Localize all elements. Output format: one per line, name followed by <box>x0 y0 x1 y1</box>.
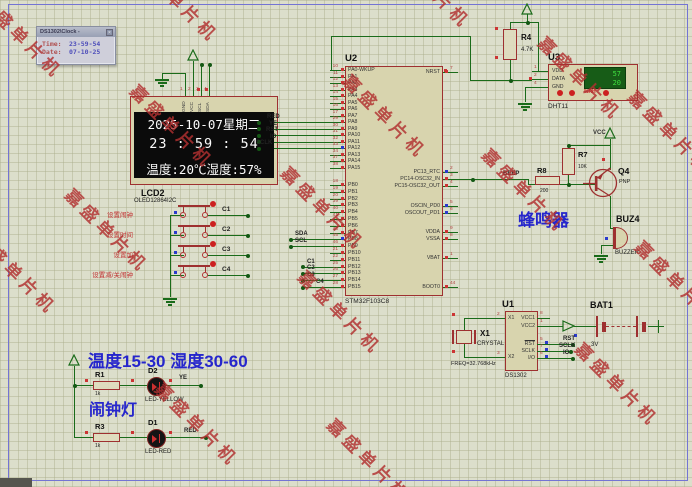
probe-marker <box>495 27 498 30</box>
ground-icon <box>160 85 164 87</box>
pin-marker <box>341 224 344 227</box>
mcu-pin-name: PC13_RTC <box>360 169 440 175</box>
junction-dot <box>208 63 212 67</box>
lcd-pin-name: VCC <box>190 102 195 112</box>
mcu-pin-number: 41 <box>322 213 338 218</box>
component-plate <box>474 330 476 344</box>
mcu-pin-name: PA11 <box>348 139 360 145</box>
pin-marker <box>341 75 344 78</box>
wire <box>470 80 532 81</box>
humidity-value: 57 <box>613 70 621 78</box>
vcc-label: VCC <box>593 130 606 136</box>
wire <box>302 287 330 288</box>
net-label-c2: C2 <box>222 226 230 233</box>
mcu-pin-name: PA4 <box>348 93 357 99</box>
ground-icon <box>523 109 527 111</box>
mcu-pin-name: PB1 <box>348 189 358 195</box>
mcu-pin-number: 10 <box>322 64 338 69</box>
pin-marker <box>341 120 344 123</box>
wire <box>170 215 171 297</box>
mcu-pin-name: PB5 <box>348 216 358 222</box>
mcu-pin-name: PA9 <box>348 126 357 132</box>
junction-dot <box>257 127 261 131</box>
pin-marker <box>341 258 344 261</box>
junction-dot <box>571 357 575 361</box>
mcu-pin-name: PB6 <box>348 223 358 229</box>
key-function-label: 设置减/关闹钟 <box>60 269 133 279</box>
pin-marker <box>445 211 448 214</box>
rtc-pin-name: VCC1 <box>505 315 535 321</box>
rtc-pin-number: 2 <box>497 312 500 317</box>
button-terminal <box>202 232 208 238</box>
net-label-io: IO <box>270 134 276 140</box>
ground-icon <box>594 255 608 257</box>
resistor-r7[interactable] <box>562 148 575 175</box>
crystal-ref: X1 <box>480 329 490 338</box>
dht-pin-number: 2 <box>534 73 537 78</box>
d1-ref: D1 <box>148 418 158 427</box>
dht-part: DHT11 <box>548 103 568 110</box>
r3-ref: R3 <box>95 422 105 431</box>
rtc-pin-name: RST <box>505 341 535 347</box>
mcu-pin-number: 26 <box>322 267 338 272</box>
r8-value: 200 <box>540 188 548 194</box>
mcu-pin-name: PA5 <box>348 100 357 106</box>
wire <box>331 36 470 37</box>
net-label-io-rtc: IO <box>563 350 569 356</box>
wire <box>464 318 505 319</box>
mcu-pin-number: 15 <box>322 97 338 102</box>
pin-marker <box>341 114 344 117</box>
date-value: 07-10-25 <box>69 48 100 56</box>
crystal-x1[interactable] <box>456 330 472 344</box>
lcd-ref: LCD2 <box>141 188 165 198</box>
wire <box>532 71 548 72</box>
wire <box>568 145 610 146</box>
net-label-sda: SDA <box>295 231 308 237</box>
pin-marker <box>445 237 448 240</box>
pin-marker <box>341 285 344 288</box>
mcu-pin-number: 45 <box>322 233 338 238</box>
pin-marker <box>445 285 448 288</box>
wire <box>537 326 550 327</box>
lcd-part: OLED12864I2C <box>134 198 176 204</box>
rtc-ref: U1 <box>502 299 514 310</box>
led-yellow-d2[interactable] <box>147 377 166 396</box>
mcu-pin-name: PA14 <box>348 158 360 164</box>
mcu-pin-name: PC15-OSC32_OUT <box>360 183 440 189</box>
junction-dot <box>526 21 530 25</box>
lcd-screen: 2025-10-07星期二 23 : 59 : 54 温度:20℃湿度:57% <box>134 112 274 178</box>
lcd-line-date: 2025-10-07星期二 <box>134 114 274 133</box>
net-label-sclk-rtc: SCLK <box>559 343 575 349</box>
junction-dot <box>257 121 261 125</box>
probe-marker <box>169 431 172 434</box>
junction-dot <box>246 254 250 258</box>
junction-dot <box>567 183 571 187</box>
button-actuator <box>210 221 216 227</box>
temperature-value: 20 <box>613 79 621 87</box>
ground-icon <box>168 304 172 306</box>
wire <box>550 358 572 359</box>
r4-value: 4.7K <box>521 47 533 53</box>
ground-icon <box>518 103 532 105</box>
wire <box>537 318 550 319</box>
rtc-pin-name: VCC2 <box>505 323 535 329</box>
wire <box>120 385 147 386</box>
button-terminal <box>180 232 186 238</box>
junction-dot <box>301 272 305 276</box>
probe-marker <box>605 237 608 240</box>
r1-value: 1k <box>95 391 100 397</box>
wire <box>510 60 511 80</box>
battery-ref: BAT1 <box>590 300 613 310</box>
probe-marker <box>545 348 548 351</box>
resistor-r8[interactable] <box>535 176 560 185</box>
mcu-pin-name: PA8 <box>348 119 357 125</box>
mcu-pin-number: 39 <box>322 199 338 204</box>
wire <box>470 36 471 80</box>
button-actuator <box>210 201 216 207</box>
mcu-pin-number: 11 <box>322 71 338 76</box>
probe-marker <box>545 355 548 358</box>
pin-marker <box>341 231 344 234</box>
resistor-r4[interactable] <box>503 29 517 60</box>
mcu-ref: U2 <box>345 53 357 64</box>
wire <box>538 22 539 72</box>
mcu-pin-number: 29 <box>322 116 338 121</box>
pin-marker <box>341 159 344 162</box>
mcu-pin-name: PB0 <box>348 182 358 188</box>
button-terminal <box>180 252 186 258</box>
wire <box>464 357 505 358</box>
pin-marker <box>341 265 344 268</box>
r3-value: 1k <box>95 443 100 449</box>
pin-marker <box>341 251 344 254</box>
d2-part: LED-YELLOW <box>145 397 184 403</box>
mcu-pin-name: BOOT0 <box>360 284 440 290</box>
junction-dot <box>200 63 204 67</box>
button-terminal <box>180 272 186 278</box>
button-terminal <box>202 252 208 258</box>
mcu-pin-number: 20 <box>322 193 338 198</box>
vcc-arrow-icon <box>68 354 80 366</box>
component-plate <box>596 316 598 337</box>
pin-marker <box>341 140 344 143</box>
probe-marker <box>495 56 498 59</box>
wire <box>537 351 550 352</box>
mcu-pin-number: 31 <box>322 129 338 134</box>
range-caption: 温度15-30 湿度30-60 <box>88 347 248 372</box>
wire <box>193 61 194 96</box>
pin-marker <box>341 197 344 200</box>
resistor-r3[interactable] <box>93 433 120 442</box>
battery-voltage: 3V <box>591 342 598 348</box>
pin-marker <box>341 210 344 213</box>
mcu-pin-name: PA3 <box>348 87 357 93</box>
junction-dot <box>301 286 305 290</box>
pin-marker <box>445 177 448 180</box>
time-label: Time: <box>42 40 62 48</box>
mcu-pin-number: 30 <box>322 123 338 128</box>
r4-ref: R4 <box>521 33 531 42</box>
mcu-pin-number: 28 <box>322 281 338 286</box>
net-label-rst: RST <box>266 127 278 133</box>
crystal-part: CRYSTAL <box>477 341 504 347</box>
mcu-pin-name: PA1 <box>348 74 357 80</box>
mcu-pin-number: 17 <box>322 110 338 115</box>
mcu-pin-number: 6 <box>450 207 453 212</box>
mcu-pin-number: 14 <box>322 90 338 95</box>
mcu-pin-number: 43 <box>322 227 338 232</box>
junction-dot <box>246 234 250 238</box>
wire <box>525 87 526 102</box>
rtc-pin-name: I/O <box>505 355 535 361</box>
mcu-pin-name: PA2 <box>348 80 357 86</box>
key-function-label: 设置加 <box>60 249 133 259</box>
wire <box>574 326 596 327</box>
probe-marker <box>169 379 172 382</box>
net-label-rst-rtc: RST <box>563 336 575 342</box>
pin-marker <box>341 81 344 84</box>
ground-icon <box>597 258 606 260</box>
mcu-pin-name: PA10 <box>348 132 360 138</box>
rtc-pin-number: 5 <box>540 337 543 342</box>
mcu-pin-name: PA6 <box>348 106 357 112</box>
rtc-pin-number: 1 <box>540 319 543 324</box>
component-plate <box>642 322 646 332</box>
dht-led-icon <box>603 90 609 96</box>
lcd-line-temp-humi: 温度:20℃湿度:57% <box>134 159 274 178</box>
junction-dot <box>204 436 208 440</box>
net-label-ye: YE <box>269 121 277 127</box>
clock-popup-window[interactable]: DS1302\Clock - × Time: 23-59-54 Date: 07… <box>36 26 116 65</box>
pin-marker <box>341 278 344 281</box>
pin-marker <box>174 231 177 234</box>
ground-icon <box>599 261 603 263</box>
wire <box>601 245 602 254</box>
mcu-pin-name: PB14 <box>348 277 361 283</box>
mcu-pin-number: 33 <box>322 142 338 147</box>
mcu-pin-name: PA13 <box>348 152 360 158</box>
r7-value: 10K <box>578 164 587 170</box>
junction-dot <box>289 238 293 242</box>
button-actuator <box>210 241 216 247</box>
wire <box>525 87 533 88</box>
probe-marker <box>85 379 88 382</box>
pin-marker <box>341 101 344 104</box>
pin-marker <box>341 94 344 97</box>
wire <box>648 326 658 327</box>
mcu-pin-number: 40 <box>322 206 338 211</box>
junction-dot <box>257 147 261 151</box>
rtc-pin-number: 6 <box>540 351 543 356</box>
pin-marker <box>341 244 344 247</box>
resistor-r1[interactable] <box>93 381 120 390</box>
wire <box>532 79 548 80</box>
q4-ref: Q4 <box>618 166 629 176</box>
mcu-pin-name: PB10 <box>348 250 361 256</box>
dht-pin-name: GND <box>552 84 564 90</box>
junction-dot <box>509 79 513 83</box>
ground-icon <box>155 79 169 81</box>
r1-ref: R1 <box>95 370 105 379</box>
junction-dot <box>567 144 571 148</box>
window-corner <box>0 478 32 487</box>
mcu-pin-name: PB11 <box>348 257 360 263</box>
pin-marker <box>174 251 177 254</box>
dht-pin-name: VDD <box>552 68 563 74</box>
mcu-pin-number: 46 <box>322 240 338 245</box>
component-plate <box>636 316 638 337</box>
junction-dot <box>301 279 305 283</box>
mcu-pin-name: NRST <box>360 69 440 75</box>
mcu-pin-name: PA15 <box>348 165 360 171</box>
mcu-pin-name: VDDA <box>360 229 440 235</box>
lcd-pin-name: GND <box>182 101 187 112</box>
lcd-pin-number: 2 <box>188 87 191 92</box>
mcu-pin-number: 42 <box>322 220 338 225</box>
dht-pin-number: 1 <box>534 65 537 70</box>
pin-marker <box>341 133 344 136</box>
date-label: Date: <box>42 48 62 56</box>
pin-marker <box>174 211 177 214</box>
battery-bat1[interactable] <box>606 326 636 327</box>
mcu-pin-name: OSCOUT_PD1 <box>360 210 440 216</box>
mcu-pin-number: 18 <box>322 179 338 184</box>
probe-marker <box>529 77 532 80</box>
mcu-pin-number: 12 <box>322 77 338 82</box>
dht-led-icon <box>557 90 563 96</box>
close-icon[interactable]: × <box>106 29 113 36</box>
wire <box>74 437 93 438</box>
pin-marker <box>174 271 177 274</box>
wire <box>120 437 147 438</box>
dht-pin-number: 4 <box>534 81 537 86</box>
crystal-freq: FREQ=32.768kHz <box>451 361 496 367</box>
mcu-pin-number: 2 <box>450 166 453 171</box>
net-label-ye: YE <box>179 375 187 381</box>
schematic-canvas: DS1302\Clock - × Time: 23-59-54 Date: 07… <box>0 0 692 487</box>
net-label-c1: C1 <box>222 206 230 213</box>
net-label-c1-mcu: C1 <box>307 259 315 265</box>
dht-rh-label: %RH <box>584 89 596 95</box>
mcu-pin-name: OSCIN_PD0 <box>360 203 440 209</box>
q4-type: PNP <box>619 179 630 185</box>
wire <box>532 87 548 88</box>
buz-ref: BUZ4 <box>616 214 640 224</box>
button-terminal <box>202 212 208 218</box>
mcu-pin-number: 5 <box>450 200 453 205</box>
r7-ref: R7 <box>578 150 588 159</box>
mcu-pin-name: PB12 <box>348 264 361 270</box>
vcc-arrow-icon <box>521 3 533 15</box>
wire <box>201 64 202 96</box>
junction-dot <box>257 134 261 138</box>
dht-pin-name: DATA <box>552 76 565 82</box>
mcu-pin-name: PB9 <box>348 243 358 249</box>
mcu-pin-number: 27 <box>322 274 338 279</box>
probe-marker <box>452 350 455 353</box>
mcu-pin-name: PB7 <box>348 230 358 236</box>
button-actuator <box>210 261 216 267</box>
power-terminal-icon <box>562 320 575 332</box>
wire <box>165 385 200 386</box>
probe-marker <box>131 379 134 382</box>
mcu-pin-number: 3 <box>450 173 453 178</box>
led-red-d1[interactable] <box>147 429 166 448</box>
probe-marker <box>131 431 134 434</box>
net-label-scl: SCL <box>295 238 307 244</box>
alarm-lamp-caption: 闹钟灯 <box>89 396 137 420</box>
mcu-pin-number: 21 <box>322 247 338 252</box>
mcu-pin-number: 7 <box>450 66 453 71</box>
d2-ref: D2 <box>148 366 158 375</box>
r8-ref: R8 <box>537 166 547 175</box>
pin-marker <box>445 256 448 259</box>
lcd-line-time: 23 : 59 : 54 <box>134 136 274 152</box>
pin-marker <box>445 170 448 173</box>
pin-marker <box>341 217 344 220</box>
dht-display: 57 20 <box>584 67 626 89</box>
mcu-pin-number: 8 <box>450 233 453 238</box>
probe-marker <box>452 313 455 316</box>
junction-dot <box>246 274 250 278</box>
pin-marker <box>341 190 344 193</box>
mcu-pin-name: PA12 <box>348 145 360 151</box>
lcd-pin-name: SDA <box>206 102 211 112</box>
junction-dot <box>246 214 250 218</box>
net-label-c3: C3 <box>222 246 230 253</box>
mcu-pin-name: PB8 <box>348 236 358 242</box>
mcu-pin-number: 4 <box>450 180 453 185</box>
pin-marker <box>341 153 344 156</box>
pin-marker <box>341 127 344 130</box>
pin-marker <box>341 203 344 206</box>
ground-icon <box>158 82 167 84</box>
mcu-pin-name: PC14-OSC32_IN <box>360 176 440 182</box>
lcd-pin-number: 4 <box>204 87 207 92</box>
mcu-pin-name: PB2 <box>348 196 358 202</box>
rtc-pin-number: 8 <box>540 311 543 316</box>
buz-part: BUZZER <box>615 250 639 256</box>
mcu-pin-number: 9 <box>450 226 453 231</box>
rtc-part: DS1302 <box>505 373 527 379</box>
dht-led-icon <box>569 90 575 96</box>
wire <box>162 73 186 74</box>
junction-dot <box>471 178 475 182</box>
probe-marker <box>602 158 605 161</box>
time-value: 23-59-54 <box>69 40 100 48</box>
wire <box>165 437 205 438</box>
key-function-label: 设置闹钟 <box>60 209 133 219</box>
junction-dot <box>289 245 293 249</box>
wire <box>464 344 465 358</box>
mcu-pin-number: 38 <box>322 162 338 167</box>
pin-marker <box>445 184 448 187</box>
mcu-pin-number: 44 <box>450 281 455 286</box>
junction-dot <box>73 384 77 388</box>
rtc-pin-number: 3 <box>497 351 500 356</box>
wire <box>537 358 550 359</box>
net-label-c3-mcu: C3 <box>307 272 315 278</box>
component-plate <box>602 322 606 332</box>
dht-ref: U3 <box>548 52 560 63</box>
component-plate <box>452 330 454 344</box>
probe-marker <box>85 431 88 434</box>
d1-part: LED-RED <box>145 449 171 455</box>
mcu-pin-number: 16 <box>322 103 338 108</box>
